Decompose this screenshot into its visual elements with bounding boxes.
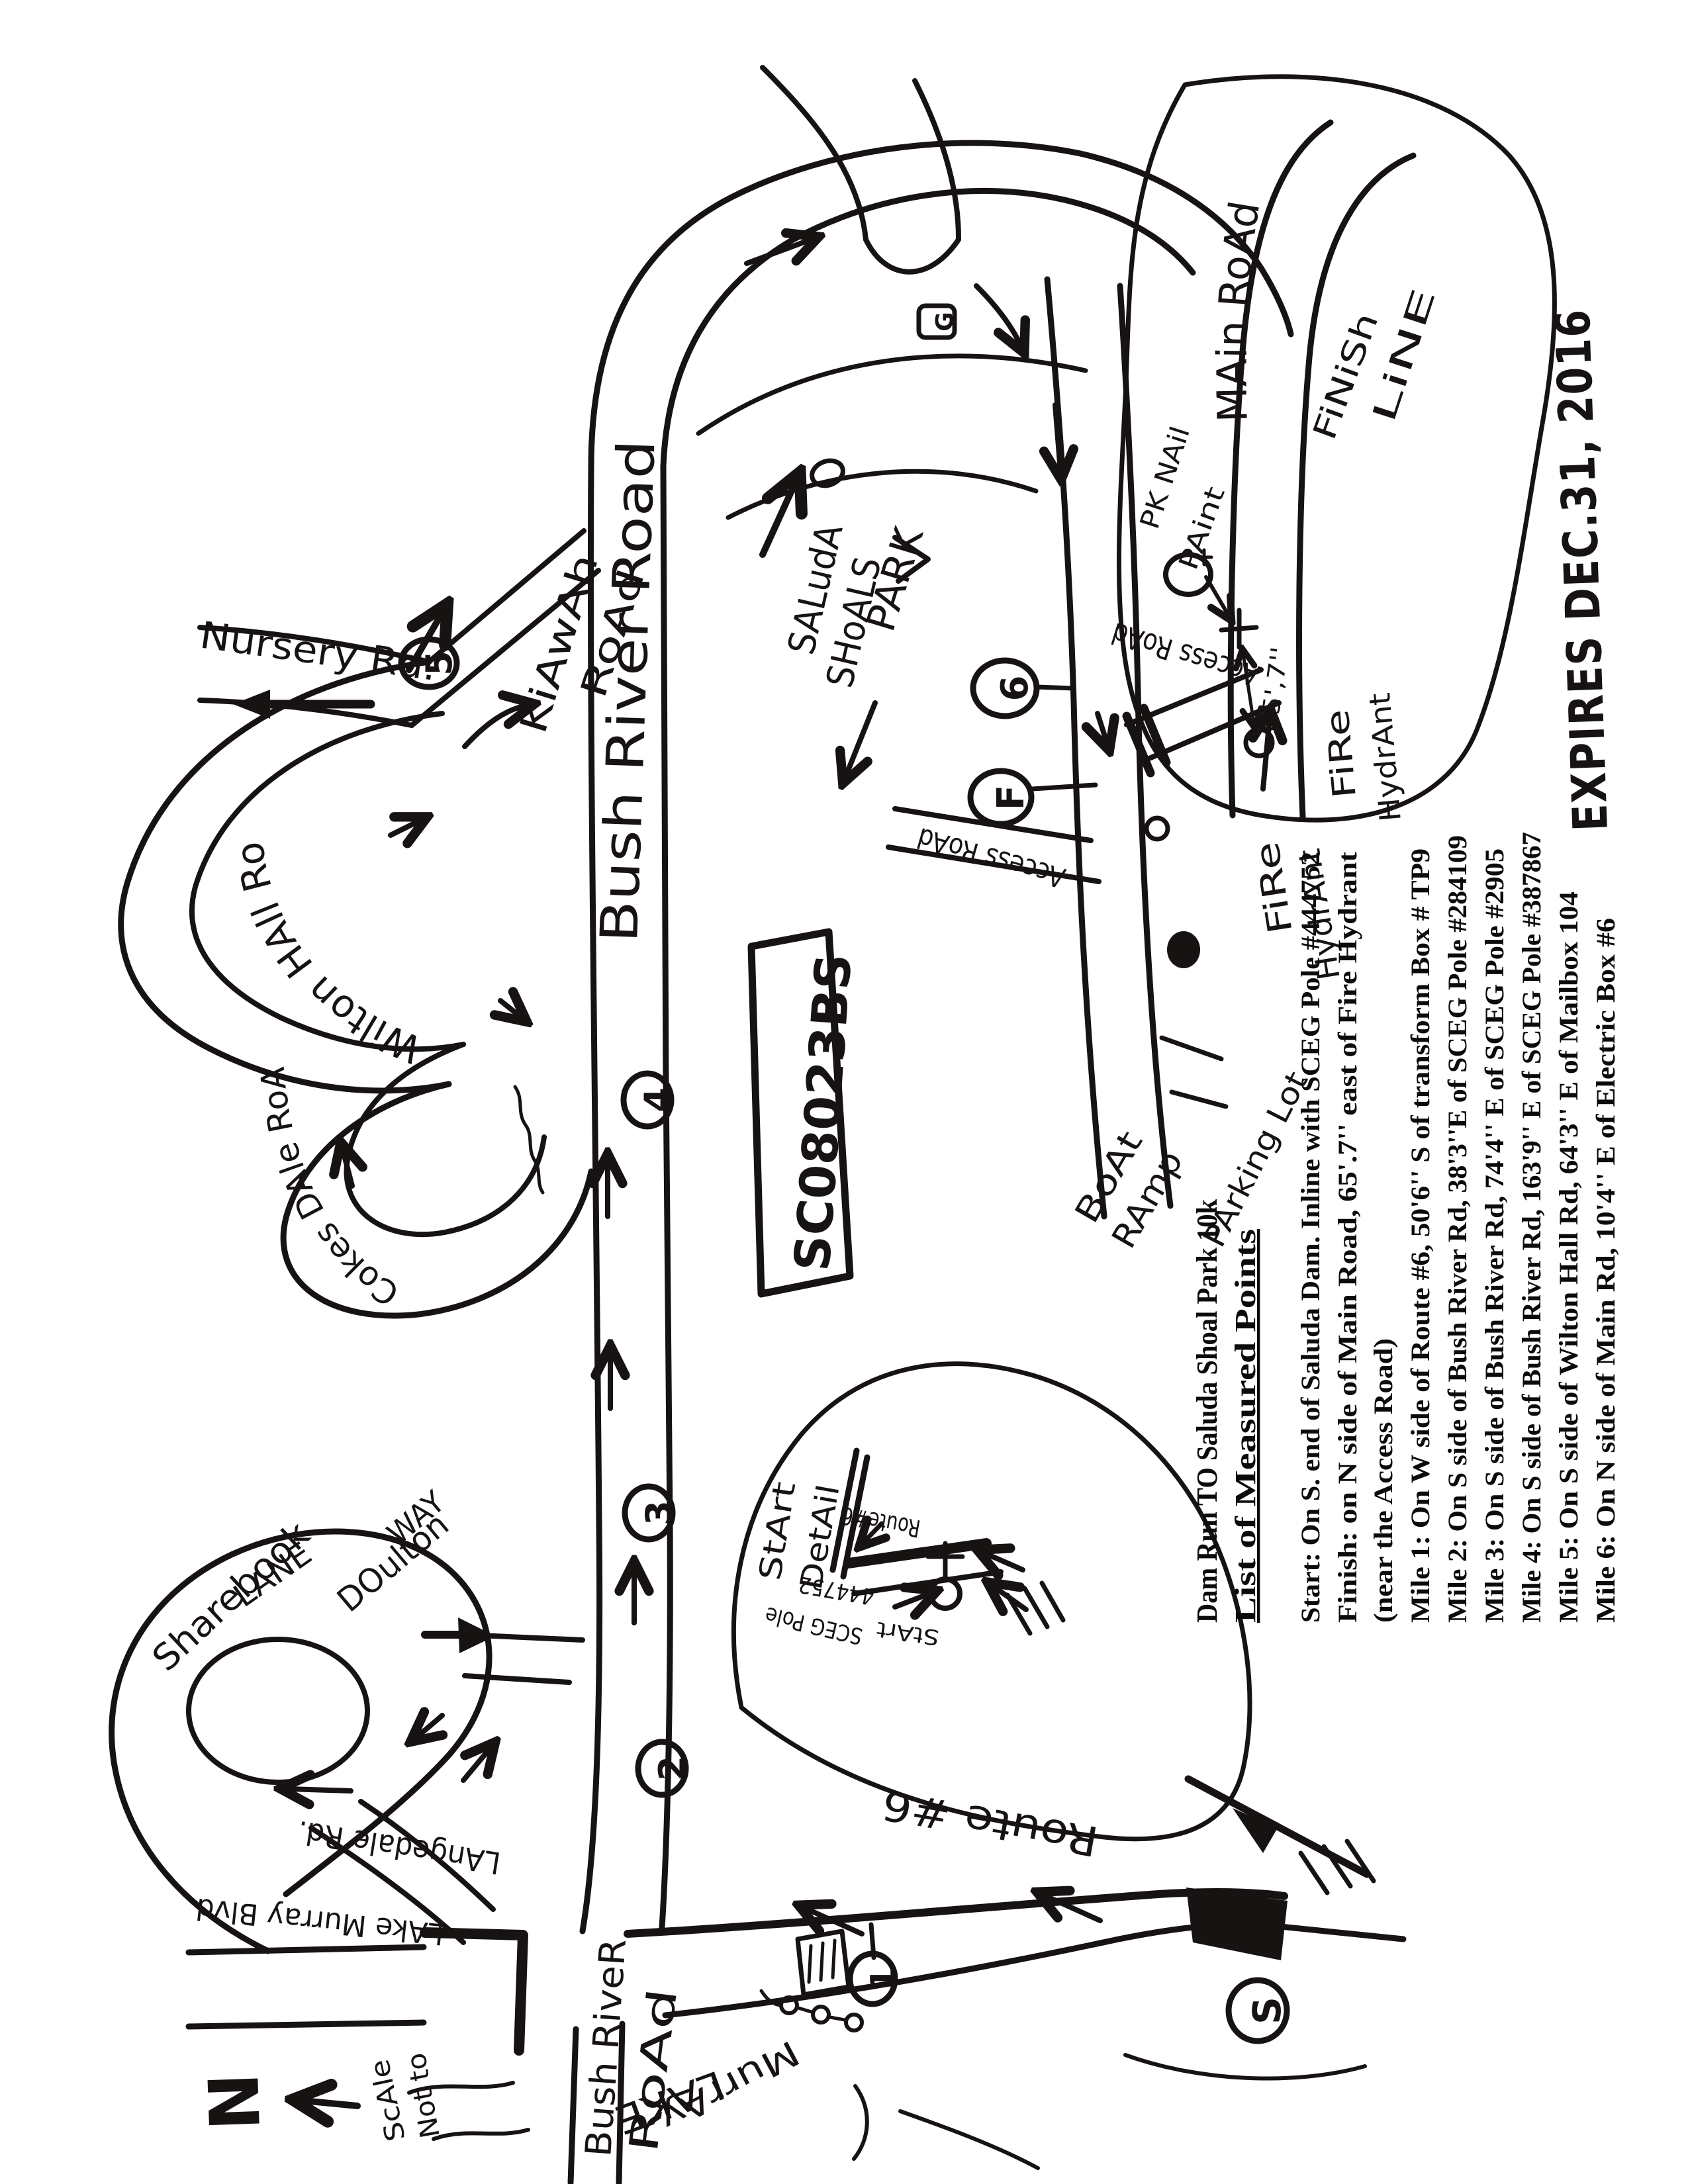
road-sharebook-loop bbox=[112, 1531, 489, 1951]
course-title: Dam Run TO Saluda Shoal Park 10k bbox=[1191, 1199, 1223, 1623]
arrow-park-down bbox=[846, 703, 875, 776]
start-detail-road-thick bbox=[849, 1543, 986, 1563]
label-hydrant-bubble: HydrAnt bbox=[1363, 692, 1408, 823]
tick-mile1 bbox=[871, 1925, 874, 1958]
arrow-langedale-left bbox=[289, 1789, 351, 1791]
arrow-main-road-down-2 bbox=[1098, 713, 1107, 743]
lake-wave-2 bbox=[434, 2130, 528, 2139]
road-bush-river-south-w bbox=[571, 2029, 576, 2183]
measured-point-mile5: Mile 5: On S side of Wilton Hall Rd, 64'… bbox=[1554, 891, 1583, 1623]
label-start-point: StArt bbox=[875, 1617, 941, 1651]
road-lmb-south bbox=[189, 2023, 424, 2026]
expiration-note: EXPIRES DEC.31, 2016 bbox=[1544, 308, 1618, 832]
arrow-nursery-head bbox=[233, 690, 270, 719]
start-detail-arrow-1 bbox=[985, 1553, 1023, 1570]
label-paint: PAint bbox=[1173, 483, 1231, 574]
park-boundary-1 bbox=[698, 356, 1086, 433]
start-detail-bubble bbox=[733, 1364, 1250, 1839]
road-ramp-loop bbox=[866, 240, 959, 272]
measured-point-mile4: Mile 4: On S side of Bush River Rd, 163'… bbox=[1517, 832, 1546, 1623]
marker-label-mile2: 2 bbox=[651, 1756, 693, 1781]
arrow-wilton-1 bbox=[391, 821, 420, 835]
measured-point-finish: Finish: on N side of Main Road, 65'.7'' … bbox=[1333, 851, 1362, 1623]
lake-wave-3 bbox=[854, 2086, 867, 2159]
tick-finish bbox=[1033, 785, 1096, 789]
road-parking-stub bbox=[1162, 1038, 1226, 1107]
road-bush-river-top-east bbox=[663, 191, 1193, 467]
start-bubble-hatching bbox=[1008, 1583, 1063, 1633]
north-letter: N bbox=[193, 2071, 276, 2132]
measured-point-mile3: Mile 3: On S side of Bush River Rd, 74'4… bbox=[1479, 848, 1509, 1623]
marker-label-mile1: 1 bbox=[864, 1967, 904, 1991]
start-point-arrow bbox=[895, 1594, 929, 1607]
label-lake-murray-blvd: LAke Murray Blvd. bbox=[185, 1890, 445, 1950]
label-sceg-pole-number: 444752 bbox=[796, 1570, 876, 1610]
north-arrow bbox=[303, 2101, 357, 2106]
label-pk-nail: PK NAil bbox=[1135, 423, 1196, 533]
course-code: SC08023BS bbox=[784, 952, 863, 1273]
finish-access-hatching bbox=[1127, 708, 1166, 773]
course-map-canvas: 5 4 3 2 1 6 F S G Bush River Road Bush R… bbox=[0, 0, 1688, 2184]
marker-label-start: S bbox=[1244, 1997, 1289, 2025]
arrow-sharebook-up bbox=[463, 1749, 490, 1780]
marker-label-finish: F bbox=[990, 785, 1033, 810]
label-wilton-hall-road: Wilton HAll RoAd bbox=[0, 0, 428, 1072]
svg-text:Wilton HAll RoAd: Wilton HAll RoAd bbox=[0, 0, 428, 1072]
lake-shore-1 bbox=[900, 2111, 1038, 2168]
measured-point-mile2: Mile 2: On S side of Bush River Rd, 38'3… bbox=[1442, 835, 1472, 1623]
svg-text:MAin RoAd: MAin RoAd bbox=[1208, 198, 1270, 423]
road-lmb-north bbox=[189, 1947, 424, 1952]
label-start-detail-1: StArt bbox=[752, 1479, 803, 1583]
circle-chain-3 bbox=[846, 2015, 862, 2030]
label-nursery-rd: Nursery Rd. bbox=[197, 614, 440, 689]
measured-points-heading: List of Measured Points bbox=[1229, 1229, 1262, 1623]
road-sharebook-inner bbox=[189, 1639, 367, 1782]
marker-label-mile6: 6 bbox=[994, 676, 1037, 702]
label-fire-bubble: FiRe bbox=[1319, 707, 1364, 799]
park-boundary-2 bbox=[728, 471, 1036, 518]
label-line-word: LiNE bbox=[1365, 284, 1443, 428]
start-point-symbol bbox=[931, 1579, 960, 1608]
marker-label-mile3: 3 bbox=[638, 1500, 680, 1525]
small-box-gate-label: G bbox=[931, 312, 959, 332]
road-cokes-outer bbox=[283, 1084, 591, 1316]
label-route6: Route #6 bbox=[878, 1780, 1102, 1866]
lake-shore-2 bbox=[1125, 2055, 1365, 2079]
measured-point-finish-2: (near the Access Road) bbox=[1368, 1338, 1398, 1623]
measured-point-start: Start: On S. end of Saluda Dam. Inline w… bbox=[1295, 852, 1325, 1623]
road-bush-river-east bbox=[662, 467, 670, 1927]
marker-label-mile4: 4 bbox=[637, 1087, 679, 1113]
road-ramp-2 bbox=[915, 81, 959, 238]
circle-chain-2 bbox=[813, 2007, 829, 2023]
measured-point-mile6: Mile 6: On N side of Main Rd, 10'4'' E o… bbox=[1591, 918, 1620, 1623]
arrow-sharebook-curve bbox=[417, 1715, 442, 1737]
road-route6-south bbox=[665, 1924, 1261, 2015]
start-detail-road-2 bbox=[854, 1572, 1001, 1594]
label-langedale: LAngedale Rd. bbox=[295, 1814, 503, 1882]
fire-hydrant-dot bbox=[1167, 931, 1200, 968]
label-sceg-pole: SCEG Pole bbox=[763, 1601, 865, 1649]
label-finish-word: FiNiSh bbox=[1306, 308, 1386, 445]
measured-point-mile1: Mile 1: On W side of Route #6, 50'6'' S … bbox=[1405, 848, 1435, 1623]
road-cokes-inner bbox=[346, 1044, 544, 1234]
tick-mile6 bbox=[1037, 687, 1074, 688]
road-dam-approach bbox=[1188, 1779, 1367, 1874]
arrow-top-2 bbox=[976, 286, 1021, 345]
transformer-box-marks bbox=[809, 1940, 835, 1982]
fire-hydrant-icon bbox=[1147, 818, 1168, 839]
label-measurement: 65',7'' bbox=[1255, 645, 1294, 734]
label-main-road: MAin RoAd bbox=[1208, 198, 1270, 423]
arrow-wilton-2 bbox=[500, 1001, 520, 1017]
arrow-top-1 bbox=[747, 240, 811, 263]
arrow-park-1 bbox=[763, 482, 796, 555]
